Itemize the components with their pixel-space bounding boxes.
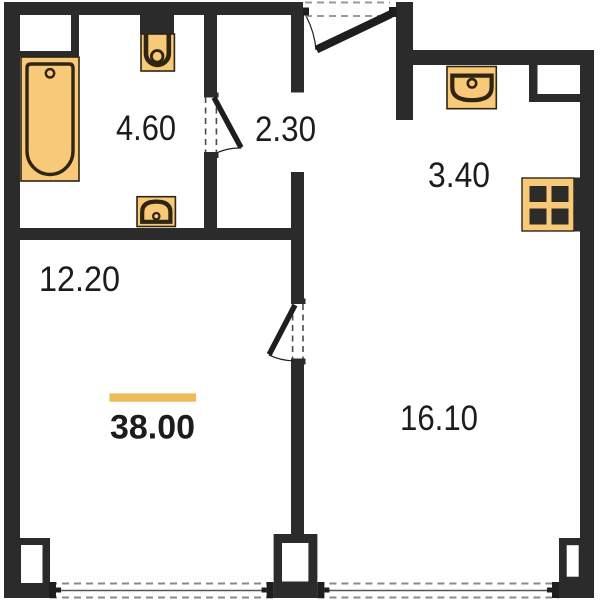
svg-text:4.60: 4.60	[116, 109, 176, 148]
svg-text:16.10: 16.10	[400, 399, 478, 438]
svg-text:38.00: 38.00	[110, 409, 195, 447]
svg-text:2.30: 2.30	[255, 110, 316, 149]
svg-text:12.20: 12.20	[39, 260, 120, 299]
svg-text:3.40: 3.40	[428, 156, 490, 195]
